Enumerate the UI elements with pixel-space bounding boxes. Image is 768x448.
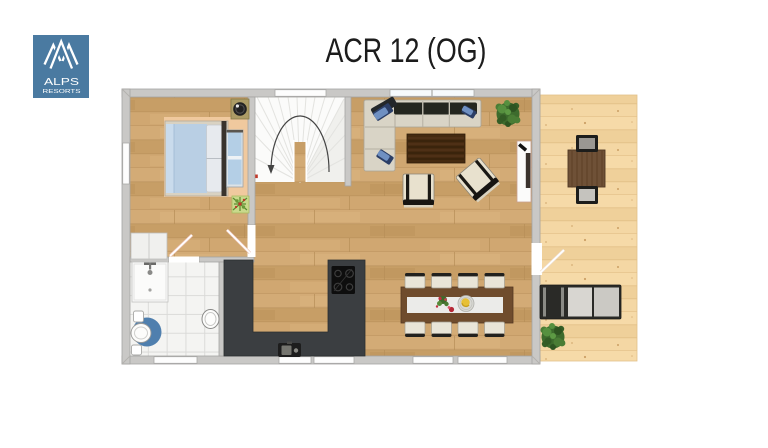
svg-text:RESORTS: RESORTS	[43, 89, 81, 95]
svg-text:ACR 12 (OG): ACR 12 (OG)	[326, 32, 487, 70]
svg-text:ALPS: ALPS	[44, 77, 79, 88]
